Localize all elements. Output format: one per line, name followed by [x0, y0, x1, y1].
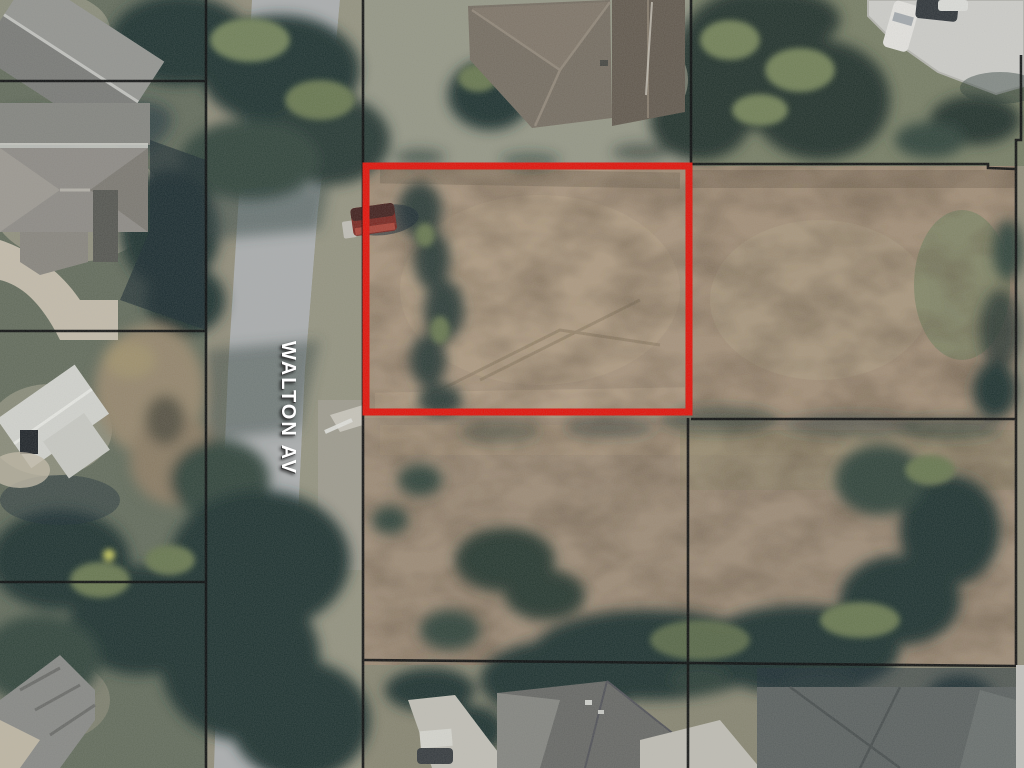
aerial-parcel-map: WALTON AV	[0, 0, 1024, 768]
color-cast-overlay	[0, 0, 1024, 768]
street-name-label: WALTON AV	[276, 341, 300, 471]
aerial-photo	[0, 0, 1024, 768]
